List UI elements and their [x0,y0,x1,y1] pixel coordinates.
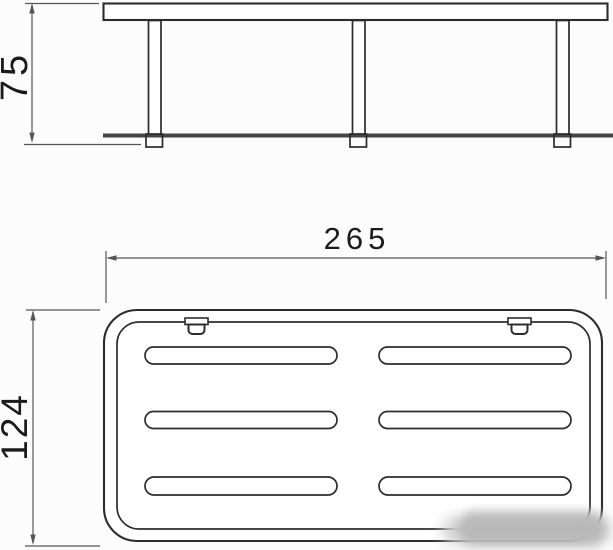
side-view-post-right [557,21,570,135]
arrowhead-up-icon [29,3,34,14]
arrowhead-up-icon [30,310,35,321]
slot-row1-right [379,347,571,364]
height-dimension-label: 75 [0,36,36,116]
slot-row1-left [145,347,337,364]
width-dimension [106,251,606,303]
technical-drawing: 75 265 124 [0,0,613,550]
slot-row2-left [145,412,337,429]
height-dimension [24,3,141,145]
side-view [103,4,613,148]
side-view-post-left [149,21,162,135]
watermark-smudge [458,512,606,545]
side-view-rail [104,4,608,21]
depth-dimension-label: 124 [0,376,36,478]
mounting-tab-left [185,318,208,334]
width-dimension-label: 265 [307,224,407,254]
mounting-tab-right [508,318,531,334]
slot-row3-right [379,477,571,495]
depth-dimension [25,310,100,546]
slot-row3-left [145,477,337,495]
drawing-linework [0,0,613,550]
arrowhead-down-icon [30,535,35,546]
arrowhead-right-icon [596,255,607,260]
side-view-post-middle [353,21,366,135]
arrowhead-down-icon [29,133,34,144]
slot-row2-right [379,412,571,429]
arrowhead-left-icon [106,255,117,260]
top-view [104,310,602,541]
